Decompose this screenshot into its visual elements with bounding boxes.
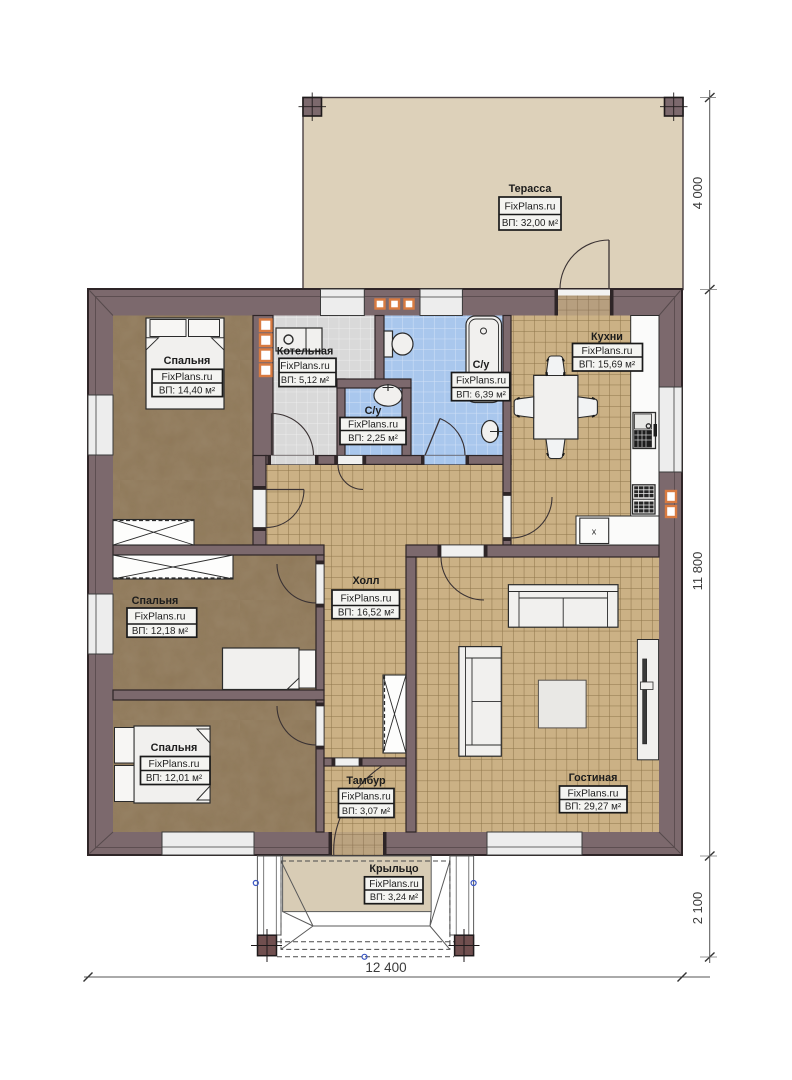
svg-text:FixPlans.ru: FixPlans.ru [369, 879, 418, 890]
svg-text:FixPlans.ru: FixPlans.ru [582, 346, 633, 357]
svg-text:Спальня: Спальня [164, 355, 211, 367]
svg-text:FixPlans.ru: FixPlans.ru [568, 788, 619, 799]
svg-text:FixPlans.ru: FixPlans.ru [135, 612, 186, 623]
svg-text:Кухни: Кухни [591, 331, 623, 343]
svg-text:Спальня: Спальня [132, 595, 179, 607]
svg-text:FixPlans.ru: FixPlans.ru [505, 201, 556, 212]
svg-text:11 800: 11 800 [690, 552, 705, 591]
svg-text:ВП: 5,12 м²: ВП: 5,12 м² [281, 375, 329, 385]
svg-text:FixPlans.ru: FixPlans.ru [456, 376, 506, 387]
svg-text:4 000: 4 000 [690, 177, 705, 210]
svg-text:Холл: Холл [352, 575, 379, 587]
svg-text:ВП: 12,18 м²: ВП: 12,18 м² [132, 626, 189, 637]
svg-text:FixPlans.ru: FixPlans.ru [341, 593, 392, 604]
svg-text:ВП: 32,00 м²: ВП: 32,00 м² [502, 218, 559, 229]
svg-text:ВП: 16,52 м²: ВП: 16,52 м² [338, 608, 395, 619]
svg-text:FixPlans.ru: FixPlans.ru [280, 361, 329, 372]
svg-text:ВП: 3,24 м²: ВП: 3,24 м² [370, 892, 418, 902]
svg-text:FixPlans.ru: FixPlans.ru [149, 759, 200, 770]
svg-text:ВП: 6,39 м²: ВП: 6,39 м² [456, 390, 507, 401]
svg-text:Терасса: Терасса [509, 183, 553, 195]
svg-text:Тамбур: Тамбур [346, 775, 386, 787]
svg-text:Гостиная: Гостиная [569, 772, 618, 784]
svg-text:ВП: 3,07 м²: ВП: 3,07 м² [342, 806, 390, 816]
svg-text:ВП: 29,27 м²: ВП: 29,27 м² [565, 802, 622, 813]
svg-text:12 400: 12 400 [365, 960, 406, 975]
svg-text:Котельная: Котельная [277, 346, 334, 358]
svg-text:FixPlans.ru: FixPlans.ru [348, 420, 398, 431]
svg-text:ВП: 15,69 м²: ВП: 15,69 м² [579, 360, 636, 371]
svg-text:Крыльцо: Крыльцо [369, 863, 419, 875]
svg-text:Спальня: Спальня [151, 742, 198, 754]
svg-text:ВП: 12,01 м²: ВП: 12,01 м² [146, 773, 203, 784]
svg-text:С/у: С/у [365, 405, 382, 417]
svg-text:FixPlans.ru: FixPlans.ru [341, 792, 390, 803]
svg-text:С/у: С/у [473, 359, 490, 371]
svg-text:ВП: 2,25 м²: ВП: 2,25 м² [348, 433, 399, 444]
svg-text:ВП: 14,40 м²: ВП: 14,40 м² [159, 385, 216, 396]
svg-text:x: x [592, 527, 597, 537]
svg-text:FixPlans.ru: FixPlans.ru [162, 372, 213, 383]
svg-text:2 100: 2 100 [690, 892, 705, 925]
